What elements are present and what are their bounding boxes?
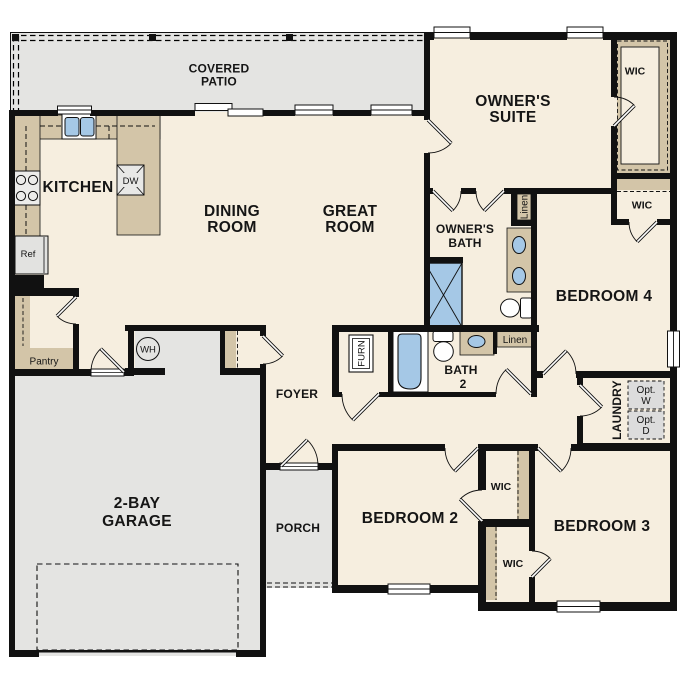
svg-text:Linen: Linen <box>520 195 531 219</box>
svg-text:Opt.: Opt. <box>637 415 656 426</box>
svg-text:GARAGE: GARAGE <box>102 513 172 530</box>
svg-text:BATH: BATH <box>448 236 481 250</box>
svg-text:Opt.: Opt. <box>637 385 656 396</box>
svg-text:WIC: WIC <box>503 558 524 570</box>
svg-text:Ref: Ref <box>21 249 36 260</box>
svg-text:WIC: WIC <box>491 481 512 493</box>
svg-text:PORCH: PORCH <box>276 521 320 535</box>
svg-text:BEDROOM 3: BEDROOM 3 <box>554 518 651 535</box>
svg-text:Pantry: Pantry <box>30 357 59 368</box>
svg-text:OWNER'S: OWNER'S <box>436 222 494 236</box>
svg-text:FURN: FURN <box>357 340 368 367</box>
svg-text:WH: WH <box>140 345 156 356</box>
svg-text:2: 2 <box>460 377 467 391</box>
svg-text:DW: DW <box>123 176 139 187</box>
svg-text:ROOM: ROOM <box>325 219 374 236</box>
svg-text:GREAT: GREAT <box>323 203 378 220</box>
svg-text:WIC: WIC <box>625 66 646 78</box>
svg-text:WIC: WIC <box>632 200 653 212</box>
svg-text:BEDROOM 4: BEDROOM 4 <box>556 288 653 305</box>
svg-text:PATIO: PATIO <box>201 75 237 89</box>
svg-text:LAUNDRY: LAUNDRY <box>610 380 624 440</box>
svg-text:BEDROOM 2: BEDROOM 2 <box>362 510 459 527</box>
svg-text:KITCHEN: KITCHEN <box>43 179 114 196</box>
svg-text:ROOM: ROOM <box>207 219 256 236</box>
svg-text:Linen: Linen <box>503 335 527 346</box>
svg-text:FOYER: FOYER <box>276 387 318 401</box>
svg-text:OWNER'S: OWNER'S <box>475 93 551 110</box>
svg-text:SUITE: SUITE <box>489 109 536 126</box>
svg-text:DINING: DINING <box>204 203 260 220</box>
svg-text:COVERED: COVERED <box>189 62 250 76</box>
svg-text:2-BAY: 2-BAY <box>114 495 161 512</box>
svg-text:BATH: BATH <box>444 363 477 377</box>
svg-text:W: W <box>641 396 651 407</box>
svg-text:D: D <box>642 426 649 437</box>
